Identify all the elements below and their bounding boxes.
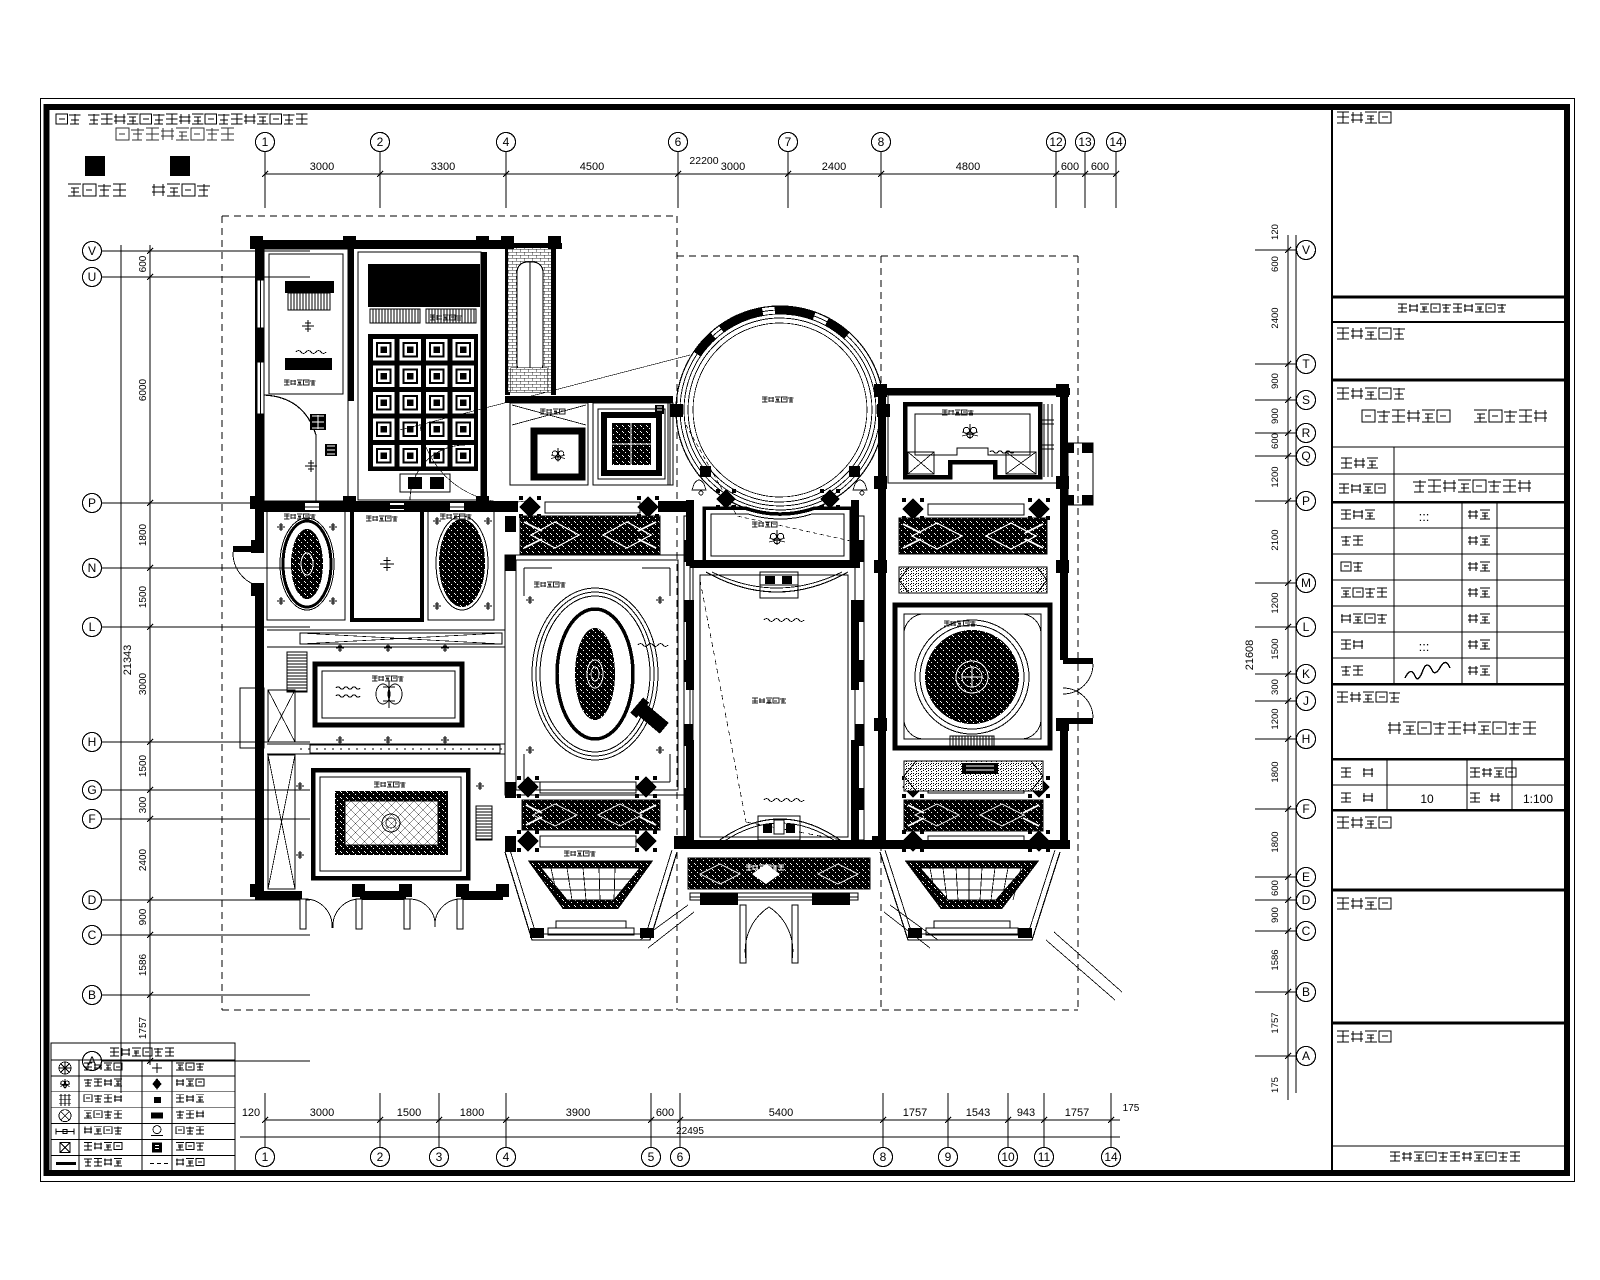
svg-text:120: 120 xyxy=(1270,224,1281,240)
svg-text:10: 10 xyxy=(1001,1150,1015,1164)
svg-text:6: 6 xyxy=(675,135,682,149)
svg-text:T: T xyxy=(1302,357,1310,371)
svg-text:3000: 3000 xyxy=(310,161,334,173)
svg-text:600: 600 xyxy=(656,1107,674,1119)
svg-text::::: ::: xyxy=(1419,639,1430,654)
svg-text:600: 600 xyxy=(1061,161,1079,173)
svg-text:14: 14 xyxy=(1104,1150,1118,1164)
svg-text:5400: 5400 xyxy=(769,1107,793,1119)
svg-text:300: 300 xyxy=(138,796,149,813)
svg-text:600: 600 xyxy=(1270,433,1281,449)
svg-text:1757: 1757 xyxy=(1065,1107,1089,1119)
svg-text:1800: 1800 xyxy=(1270,761,1281,782)
svg-text:R: R xyxy=(1302,426,1311,440)
svg-text:1800: 1800 xyxy=(138,523,149,546)
svg-text:2100: 2100 xyxy=(1270,529,1281,550)
svg-text:175: 175 xyxy=(1270,1077,1281,1093)
svg-text:1: 1 xyxy=(262,135,269,149)
svg-text:1500: 1500 xyxy=(138,754,149,777)
svg-text:1586: 1586 xyxy=(1270,949,1281,970)
svg-text:3000: 3000 xyxy=(721,161,745,173)
svg-text:900: 900 xyxy=(138,908,149,925)
svg-text:300: 300 xyxy=(1270,679,1281,695)
svg-text:G: G xyxy=(87,783,96,797)
svg-text:2: 2 xyxy=(377,1150,384,1164)
svg-text:M: M xyxy=(1301,576,1311,590)
svg-text:10: 10 xyxy=(1420,792,1434,806)
svg-text:1500: 1500 xyxy=(1270,638,1281,659)
svg-text:1800: 1800 xyxy=(1270,831,1281,852)
svg-text:N: N xyxy=(88,561,97,575)
svg-text:1800: 1800 xyxy=(460,1107,484,1119)
svg-text:175: 175 xyxy=(1123,1103,1140,1114)
svg-text:11: 11 xyxy=(1038,1150,1051,1164)
svg-text:K: K xyxy=(1302,667,1310,681)
svg-text:3000: 3000 xyxy=(310,1107,334,1119)
svg-text:1200: 1200 xyxy=(1270,592,1281,613)
svg-text:12: 12 xyxy=(1049,135,1063,149)
svg-text:4: 4 xyxy=(503,135,510,149)
svg-text:3000: 3000 xyxy=(138,672,149,695)
svg-text:E: E xyxy=(1302,870,1310,884)
svg-text:3: 3 xyxy=(436,1150,443,1164)
svg-text:D: D xyxy=(88,893,97,907)
svg-text:V: V xyxy=(1302,243,1310,257)
svg-text:1500: 1500 xyxy=(397,1107,421,1119)
svg-text:3900: 3900 xyxy=(566,1107,590,1119)
svg-text:2400: 2400 xyxy=(138,848,149,871)
svg-text:C: C xyxy=(88,928,97,942)
svg-text:14: 14 xyxy=(1109,135,1123,149)
svg-text:2400: 2400 xyxy=(822,161,846,173)
svg-text:F: F xyxy=(1302,802,1309,816)
svg-text:1:100: 1:100 xyxy=(1523,792,1553,806)
svg-text:1757: 1757 xyxy=(138,1016,149,1039)
svg-text:5: 5 xyxy=(648,1150,655,1164)
svg-text:3300: 3300 xyxy=(431,161,455,173)
svg-text:6: 6 xyxy=(677,1150,684,1164)
svg-text:6000: 6000 xyxy=(138,378,149,401)
svg-text:C: C xyxy=(1302,924,1311,938)
svg-text:1500: 1500 xyxy=(138,585,149,608)
svg-text:H: H xyxy=(1302,732,1311,746)
svg-text:S: S xyxy=(1302,393,1310,407)
svg-text:U: U xyxy=(88,270,97,284)
svg-text:A: A xyxy=(1302,1049,1310,1063)
svg-text:P: P xyxy=(1302,494,1310,508)
svg-text:22495: 22495 xyxy=(676,1126,704,1137)
svg-text:900: 900 xyxy=(1270,373,1281,389)
svg-text:4500: 4500 xyxy=(580,161,604,173)
svg-text:900: 900 xyxy=(1270,408,1281,424)
svg-text:J: J xyxy=(1303,694,1309,708)
svg-text:120: 120 xyxy=(242,1107,260,1119)
svg-text:943: 943 xyxy=(1017,1107,1035,1119)
svg-text:22200: 22200 xyxy=(689,155,718,167)
svg-text:8: 8 xyxy=(878,135,885,149)
svg-text:1757: 1757 xyxy=(1270,1012,1281,1033)
svg-text:600: 600 xyxy=(1270,880,1281,896)
svg-text:1757: 1757 xyxy=(903,1107,927,1119)
svg-text:2400: 2400 xyxy=(1270,307,1281,328)
svg-text:7: 7 xyxy=(785,135,792,149)
svg-text:900: 900 xyxy=(1270,907,1281,923)
svg-text:1200: 1200 xyxy=(1270,466,1281,487)
svg-text:V: V xyxy=(88,244,96,258)
svg-text:1543: 1543 xyxy=(966,1107,990,1119)
svg-text:H: H xyxy=(88,735,97,749)
svg-text:9: 9 xyxy=(945,1150,952,1164)
svg-text::::: ::: xyxy=(1419,509,1430,524)
svg-text:1: 1 xyxy=(262,1150,269,1164)
svg-text:600: 600 xyxy=(1091,161,1109,173)
svg-text:Q: Q xyxy=(1301,449,1310,463)
svg-text:B: B xyxy=(1302,985,1310,999)
svg-text:B: B xyxy=(88,988,96,1002)
svg-text:4800: 4800 xyxy=(956,161,980,173)
svg-text:1200: 1200 xyxy=(1270,708,1281,729)
svg-text:1586: 1586 xyxy=(138,953,149,976)
svg-text:F: F xyxy=(88,812,95,826)
svg-text:L: L xyxy=(89,620,96,634)
svg-text:21608: 21608 xyxy=(1244,640,1256,671)
svg-text:D: D xyxy=(1302,893,1311,907)
svg-text:8: 8 xyxy=(880,1150,887,1164)
svg-text:21343: 21343 xyxy=(122,645,134,676)
svg-text:L: L xyxy=(1303,620,1310,634)
svg-text:4: 4 xyxy=(503,1150,510,1164)
svg-text:P: P xyxy=(88,496,96,510)
svg-text:2: 2 xyxy=(377,135,384,149)
svg-text:13: 13 xyxy=(1078,135,1092,149)
svg-text:600: 600 xyxy=(1270,256,1281,272)
svg-text:600: 600 xyxy=(138,255,149,272)
